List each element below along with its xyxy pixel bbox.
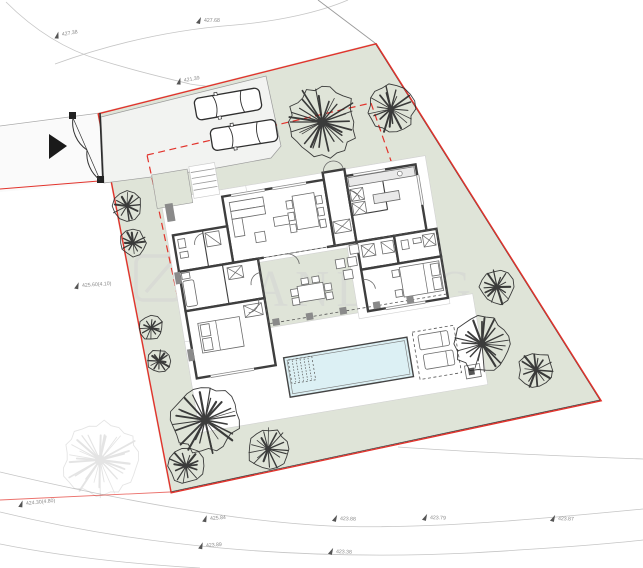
- elevation-label: 423.88: [332, 515, 356, 523]
- contour-line: [0, 472, 643, 527]
- gate-post: [97, 176, 104, 183]
- elevation-value: 425.84: [210, 515, 226, 522]
- elevation-value: 421.39: [183, 75, 200, 84]
- elevation-label: 423.79: [422, 514, 446, 522]
- shaft-box: [422, 233, 436, 247]
- elevation-label: 427.38: [53, 28, 78, 39]
- tree: [64, 420, 139, 498]
- elevation-label: 423.38: [328, 548, 352, 556]
- elevation-value: 423.87: [558, 516, 574, 523]
- shaft-box: [352, 201, 367, 215]
- elevation-value: 425.60(4.10): [82, 281, 112, 289]
- site-plan-drawing: STANLING: [0, 0, 643, 568]
- elevation-label: 423.87: [550, 515, 574, 523]
- site-plan: STANLING: [0, 0, 643, 568]
- contour-line: [0, 512, 643, 555]
- planter: [152, 169, 193, 208]
- contour-line: [55, 0, 348, 64]
- road-boundary-red-lower: [0, 492, 170, 500]
- parcel-line: [318, 0, 375, 43]
- wardrobe: [243, 303, 263, 318]
- shaft-box: [361, 243, 376, 257]
- entry-steps: [189, 163, 220, 199]
- contour-line: [0, 544, 200, 568]
- elevation-label: 425.60(4.10): [74, 280, 112, 290]
- elevation-value: 427.68: [204, 18, 220, 24]
- gate-post: [69, 112, 76, 119]
- elevation-value: 423.89: [206, 542, 222, 549]
- elevation-value: 423.79: [430, 515, 446, 522]
- elevation-label: 425.84: [202, 514, 226, 523]
- elevation-value: 424.30(4.80): [26, 498, 56, 507]
- elevation-value: 427.38: [61, 29, 78, 38]
- entry-closet: [333, 219, 352, 234]
- elevation-value: 423.38: [336, 549, 352, 556]
- elevation-label: 427.68: [196, 17, 220, 24]
- elevation-value: 423.88: [340, 516, 356, 523]
- wardrobe: [227, 265, 244, 279]
- contour-line: [398, 447, 643, 459]
